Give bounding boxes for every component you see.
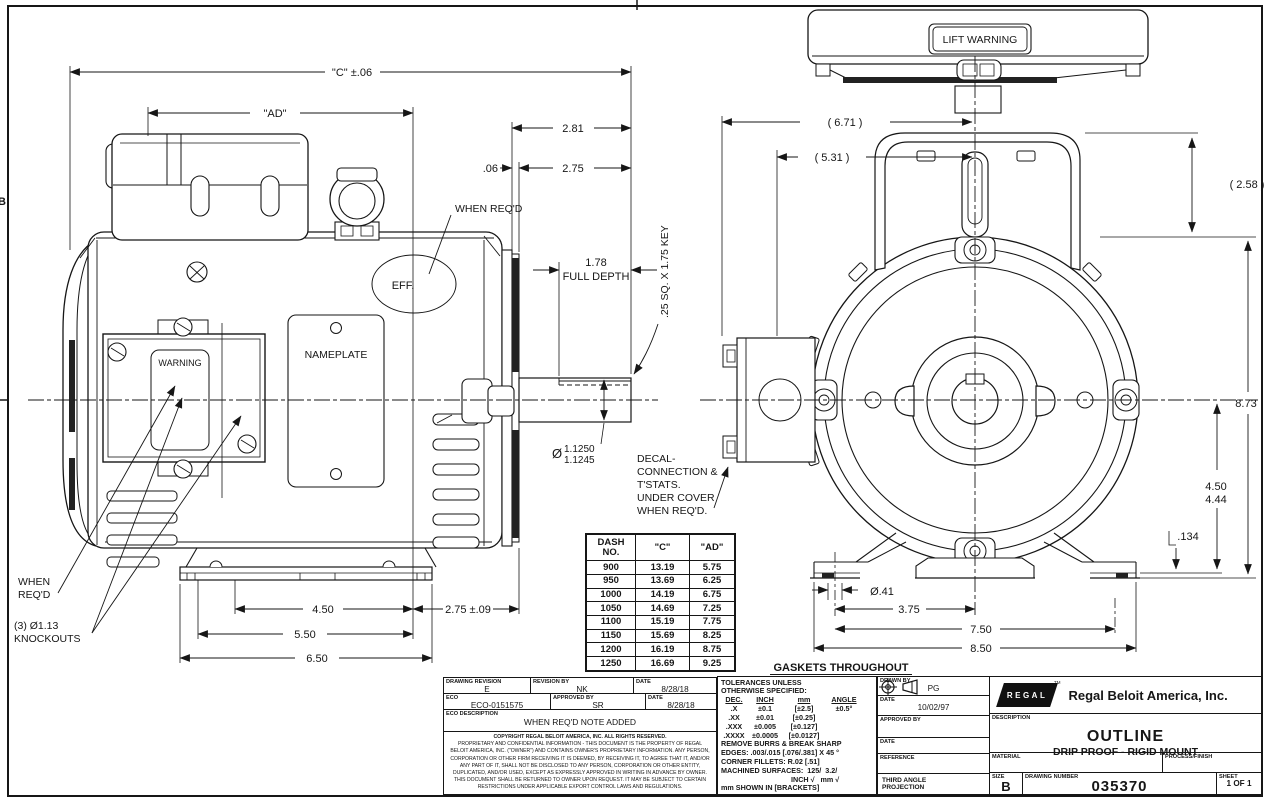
third-angle-projection-icon xyxy=(878,677,920,697)
front-view: LIFT WARNING xyxy=(723,10,1148,578)
dimension-table: DASHNO. "C" "AD" 90013.195.75 95013.696.… xyxy=(585,533,736,672)
drawn-date-cell: DATE 10/02/97 xyxy=(878,696,989,716)
dim-850: 8.50 xyxy=(970,643,991,655)
decal-note-2: CONNECTION & xyxy=(637,466,718,478)
shaft-dia-lo: 1.1245 xyxy=(564,455,595,466)
warning-label: WARNING xyxy=(158,358,201,368)
knockouts-label-2: KNOCKOUTS xyxy=(14,633,81,645)
dim-2-75: 2.75 xyxy=(562,163,583,175)
side-view: EFF. WHEN REQ'D NAMEPLATE WARNING xyxy=(63,134,631,580)
regal-logo: REGAL xyxy=(996,683,1058,707)
approved-date-cell-title: DATE xyxy=(878,738,989,754)
table-row: 90013.195.75 xyxy=(586,561,735,575)
table-row: 125016.699.25 xyxy=(586,657,735,671)
dim-2-81: 2.81 xyxy=(562,123,583,135)
nameplate: NAMEPLATE xyxy=(288,315,384,487)
dim-full-depth-lbl: FULL DEPTH xyxy=(563,271,630,283)
table-row: 110015.197.75 xyxy=(586,616,735,630)
sheet-cell: SHEET 1 OF 1 xyxy=(1217,773,1261,795)
approved-date-cell: DATE 8/28/18 xyxy=(646,694,716,709)
gaskets-note: GASKETS THROUGHOUT xyxy=(770,662,912,675)
zone-marker-b: B xyxy=(0,196,6,208)
engineering-drawing-sheet: EFF. WHEN REQ'D NAMEPLATE WARNING xyxy=(0,0,1280,800)
approved-by-cell-title: APPROVED BY xyxy=(878,716,989,738)
shaft-dia-symbol: Ø xyxy=(552,446,562,461)
dimension-table-header: DASHNO. "C" "AD" xyxy=(586,534,735,561)
dim-444: 4.44 xyxy=(1205,494,1226,506)
dim-c: "C" ±.06 xyxy=(332,67,372,79)
revision-date-cell: DATE 8/28/18 xyxy=(634,678,716,693)
dim-550: 5.50 xyxy=(294,629,315,641)
conduit-box-side xyxy=(106,134,308,240)
description-title: OUTLINE xyxy=(990,728,1261,746)
when-reqd-top-label: WHEN REQ'D xyxy=(455,203,523,215)
key-note: .25 SQ. X 1.75 KEY xyxy=(659,225,671,318)
decal-note-1: DECAL- xyxy=(637,453,676,465)
company-name: Regal Beloit America, Inc. xyxy=(1069,688,1228,703)
when-reqd-left-1: WHEN xyxy=(18,576,50,588)
description-cell: DESCRIPTION OUTLINE DRIP PROOF - RIGID M… xyxy=(990,714,1261,753)
top-view: LIFT WARNING xyxy=(808,10,1148,113)
dim-450-front: 4.50 xyxy=(1205,481,1226,493)
dim-450: 4.50 xyxy=(312,604,333,616)
decal-note-5: WHEN REQ'D. xyxy=(637,505,707,517)
drawing-number-cell: DRAWING NUMBER 035370 xyxy=(1023,773,1217,795)
revision-block: DRAWING REVISION E REVISION BY NK DATE 8… xyxy=(443,677,717,795)
size-cell: SIZE B xyxy=(990,773,1023,795)
table-row: 120016.198.75 xyxy=(586,643,735,657)
motor-base-side xyxy=(180,548,436,580)
dim-531: ( 5.31 ) xyxy=(815,152,850,164)
description-subtitle: DRIP PROOF - RIGID MOUNT xyxy=(990,746,1261,758)
dim-275-09: 2.75 ±.09 xyxy=(445,604,491,616)
table-row: 100014.196.75 xyxy=(586,588,735,602)
decal-note-3: T'STATS. xyxy=(637,479,681,491)
knockouts-label-1: (3) Ø1.13 xyxy=(14,620,59,632)
eco-description-cell: ECO DESCRIPTION WHEN REQ'D NOTE ADDED xyxy=(444,710,716,732)
dim-375: 3.75 xyxy=(898,604,919,616)
table-row: 105014.697.25 xyxy=(586,602,735,616)
dim-650: 6.50 xyxy=(306,653,327,665)
tolerance-table: DEC.INCHmmANGLE .X±0.1[±2.5]±0.5° .XX±0.… xyxy=(721,695,876,740)
title-block: DRAWN BY PG DATE 10/02/97 APPROVED BY DA… xyxy=(877,676,1262,795)
reference-cell: REFERENCE xyxy=(878,754,989,774)
shaft-dia-hi: 1.1250 xyxy=(564,444,595,455)
tolerance-block: TOLERANCES UNLESS OTHERWISE SPECIFIED: D… xyxy=(717,676,877,795)
dim-ad: "AD" xyxy=(263,108,286,120)
eye-bolt-side xyxy=(330,168,384,240)
eco-cell: ECO ECO-0151575 xyxy=(444,694,551,709)
table-row: 115015.698.25 xyxy=(586,629,735,643)
copyright-notice: COPYRIGHT REGAL BELOIT AMERICA, INC. ALL… xyxy=(444,732,716,794)
dim-258: ( 2.58 ) xyxy=(1230,179,1265,191)
approved-by-cell: APPROVED BY SR xyxy=(551,694,646,709)
dim-06: .06 xyxy=(483,163,498,175)
dim-o41: Ø.41 xyxy=(870,586,894,598)
company-row: REGAL TM Regal Beloit America, Inc. xyxy=(990,677,1261,714)
projection-cell: THIRD ANGLE PROJECTION xyxy=(878,774,989,794)
table-row: 95013.696.25 xyxy=(586,574,735,588)
decal-note-4: UNDER COVER xyxy=(637,492,715,504)
dim-671: ( 6.71 ) xyxy=(828,117,863,129)
eff-label: EFF. xyxy=(392,280,415,292)
dim-full-depth-val: 1.78 xyxy=(585,257,606,269)
lift-warning-label: LIFT WARNING xyxy=(943,34,1018,46)
revision-by-cell: REVISION BY NK xyxy=(531,678,634,693)
dim-750: 7.50 xyxy=(970,624,991,636)
dim-134: .134 xyxy=(1177,531,1198,543)
drawing-revision-cell: DRAWING REVISION E xyxy=(444,678,531,693)
nameplate-label: NAMEPLATE xyxy=(305,349,368,361)
when-reqd-left-2: REQ'D xyxy=(18,589,51,601)
